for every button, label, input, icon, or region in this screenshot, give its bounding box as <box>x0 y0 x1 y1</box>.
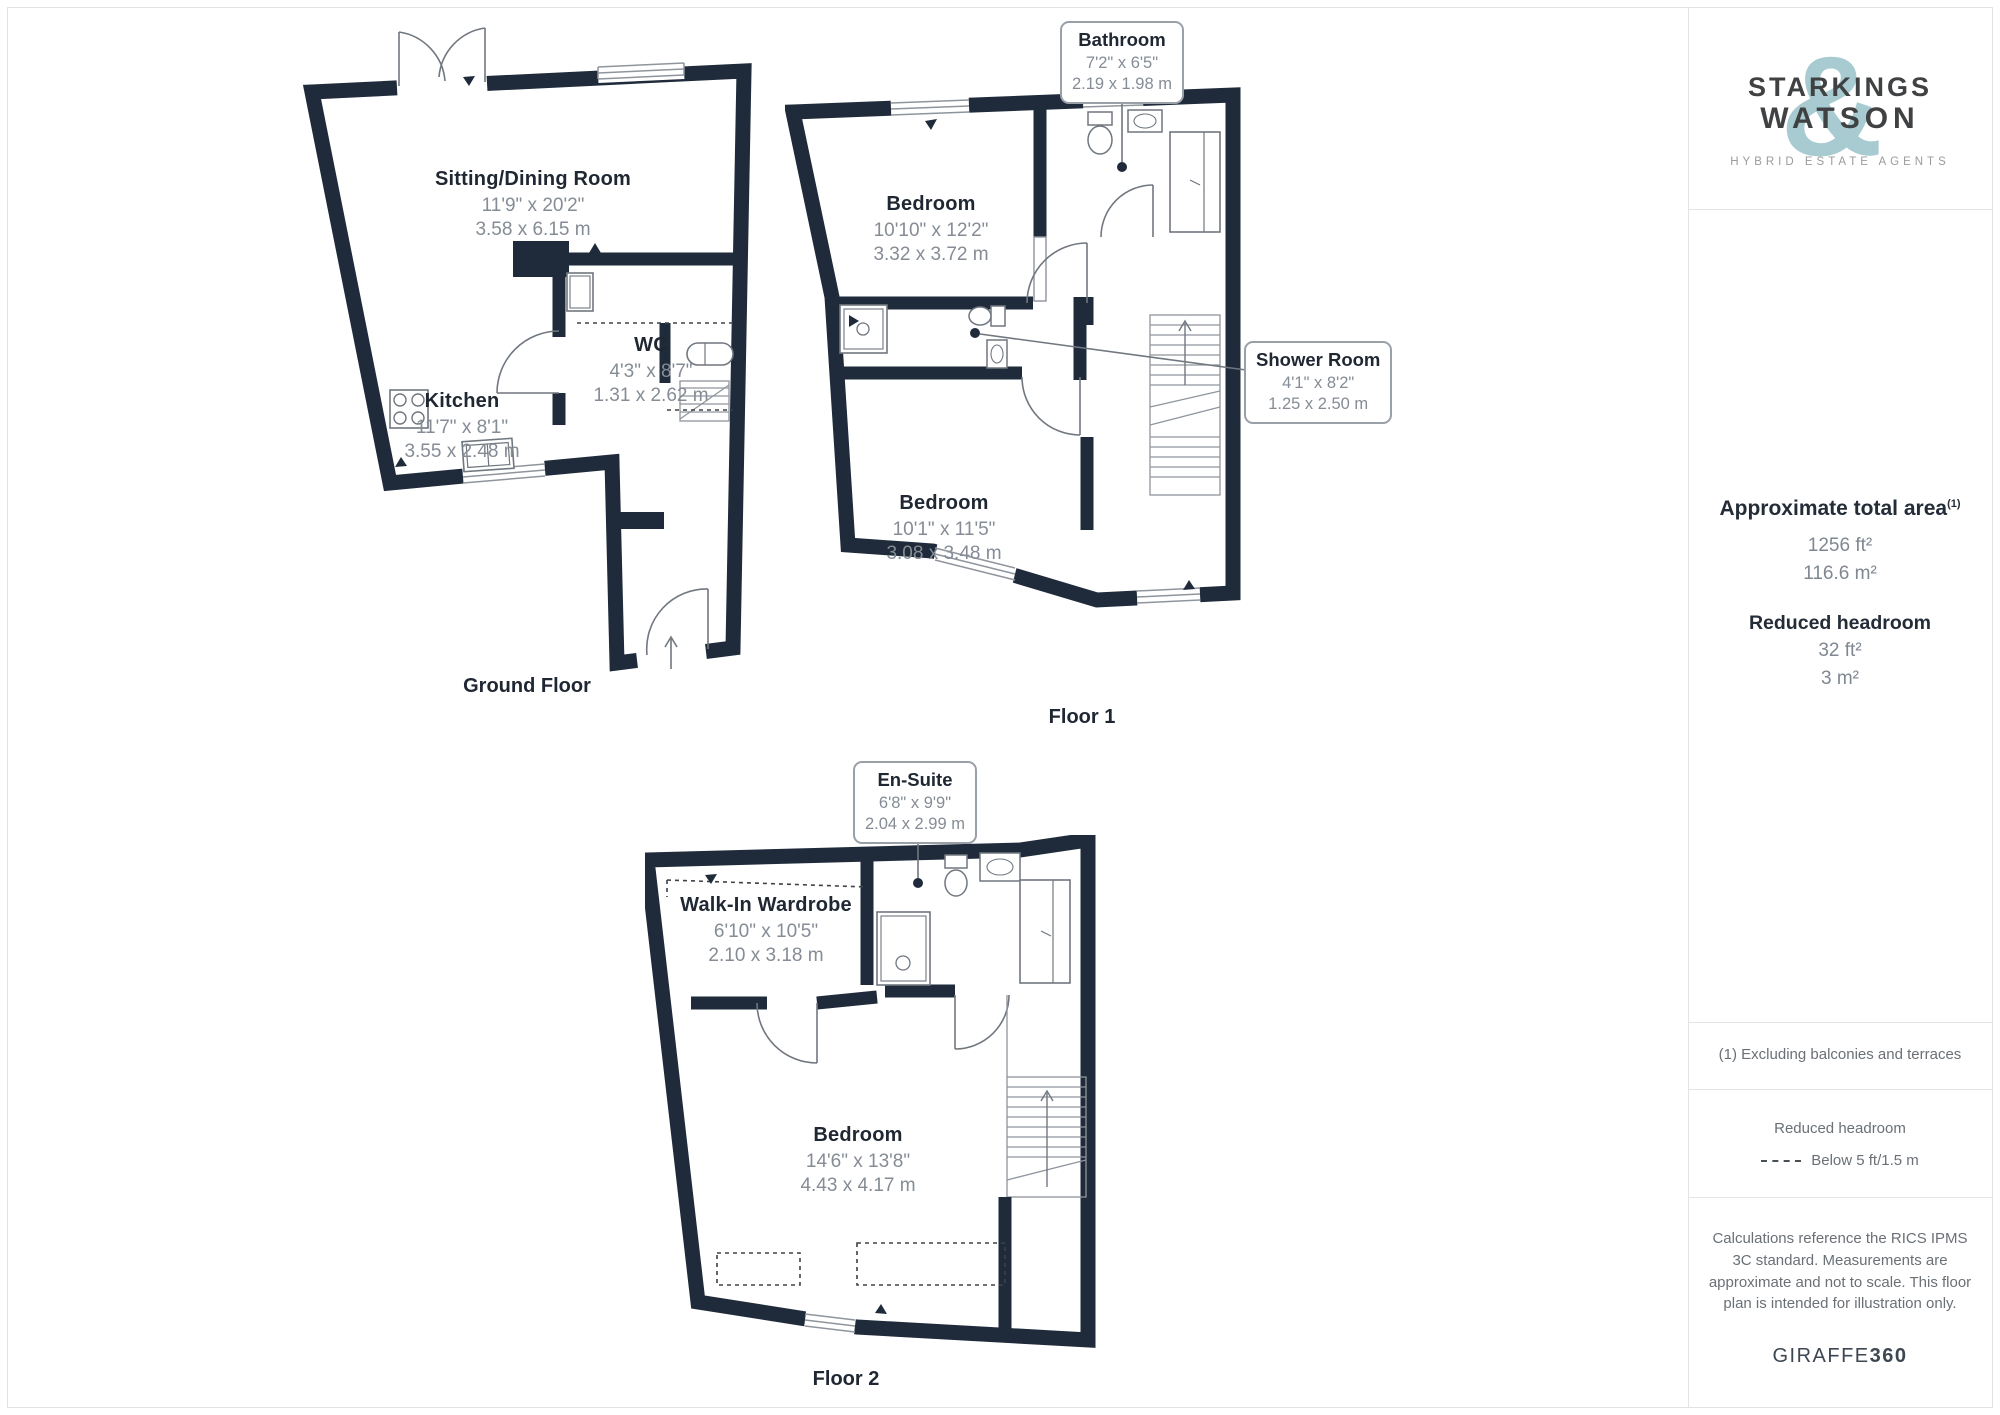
callout-name: Bathroom <box>1072 29 1172 51</box>
disclaimer-text: Calculations reference the RICS IPMS 3C … <box>1702 1228 1978 1315</box>
room-label-bedroom-3: Bedroom 14'6" x 13'8" 4.43 x 4.17 m <box>800 1124 915 1199</box>
total-area-title-text: Approximate total area <box>1719 497 1947 520</box>
callout-en-suite: En-Suite 6'8" x 9'9" 2.04 x 2.99 m <box>853 761 977 844</box>
room-name: Bedroom <box>873 193 988 216</box>
divider <box>1689 209 1992 210</box>
callout-name: Shower Room <box>1256 349 1380 371</box>
callout-name: En-Suite <box>865 769 965 791</box>
divider <box>1689 1089 1992 1090</box>
room-name: Kitchen <box>404 390 519 413</box>
room-label-bedroom-2: Bedroom 10'1" x 11'5" 3.08 x 3.48 m <box>886 492 1001 567</box>
room-name: Bedroom <box>800 1124 915 1147</box>
room-name: WC <box>593 334 708 357</box>
total-area-imperial: 1256 ft² <box>1688 535 1992 557</box>
caption-floor-2: Floor 2 <box>813 1368 880 1391</box>
brand-logo: & STARKINGS WATSON HYBRID ESTATE AGENTS <box>1688 8 1992 209</box>
room-name: Bedroom <box>886 492 1001 515</box>
room-dims-metric: 3.55 x 2.48 m <box>404 440 519 464</box>
brand-name-bottom: WATSON <box>1688 102 1992 136</box>
callout-shower-room: Shower Room 4'1" x 8'2" 1.25 x 2.50 m <box>1244 341 1392 424</box>
caption-ground-floor: Ground Floor <box>463 675 591 698</box>
room-dims-imperial: 11'9" x 20'2" <box>435 194 631 218</box>
room-dims-metric: 4.43 x 4.17 m <box>800 1174 915 1198</box>
room-dims-imperial: 10'10" x 12'2" <box>873 219 988 243</box>
legend-label: Below 5 ft/1.5 m <box>1811 1152 1919 1169</box>
room-dims-imperial: 14'6" x 13'8" <box>800 1150 915 1174</box>
callout-bathroom: Bathroom 7'2" x 6'5" 2.19 x 1.98 m <box>1060 21 1184 104</box>
room-dims-imperial: 6'10" x 10'5" <box>680 920 852 944</box>
room-dims-metric: 3.32 x 3.72 m <box>873 243 988 267</box>
total-area-title: Approximate total area(1) <box>1688 497 1992 521</box>
provider-suffix: 360 <box>1870 1345 1908 1367</box>
room-label-walk-in-wardrobe: Walk-In Wardrobe 6'10" x 10'5" 2.10 x 3.… <box>680 894 852 969</box>
brand-tagline: HYBRID ESTATE AGENTS <box>1688 156 1992 168</box>
room-label-kitchen: Kitchen 11'7" x 8'1" 3.55 x 2.48 m <box>404 390 519 465</box>
callout-dims-metric: 2.19 x 1.98 m <box>1072 74 1172 95</box>
floorplan-page: Sitting/Dining Room 11'9" x 20'2" 3.58 x… <box>0 0 2000 1415</box>
callout-dims-metric: 1.25 x 2.50 m <box>1256 394 1380 415</box>
footnote: (1) Excluding balconies and terraces <box>1688 1046 1992 1063</box>
caption-floor-1: Floor 1 <box>1049 706 1116 729</box>
callout-dims-imperial: 6'8" x 9'9" <box>865 793 965 814</box>
room-dims-imperial: 11'7" x 8'1" <box>404 416 519 440</box>
reduced-headroom-title: Reduced headroom <box>1688 612 1992 635</box>
room-label-bedroom-1: Bedroom 10'10" x 12'2" 3.32 x 3.72 m <box>873 193 988 268</box>
divider <box>1689 1022 1992 1023</box>
room-dims-imperial: 4'3" x 8'7" <box>593 360 708 384</box>
floor-1-plan-drawing <box>785 85 1255 725</box>
room-dims-metric: 3.58 x 6.15 m <box>435 218 631 242</box>
provider-logo: GIRAFFE360 <box>1688 1345 1992 1368</box>
reduced-headroom-metric: 3 m² <box>1688 668 1992 690</box>
legend-row: Below 5 ft/1.5 m <box>1688 1152 1992 1169</box>
brand-name-top: STARKINGS <box>1688 72 1992 103</box>
callout-dims-imperial: 7'2" x 6'5" <box>1072 53 1172 74</box>
provider-name: GIRAFFE <box>1772 1345 1869 1367</box>
dashed-line-swatch <box>1761 1160 1801 1162</box>
callout-dims-metric: 2.04 x 2.99 m <box>865 814 965 835</box>
room-dims-metric: 2.10 x 3.18 m <box>680 944 852 968</box>
divider <box>1689 1197 1992 1198</box>
legend-title: Reduced headroom <box>1688 1120 1992 1137</box>
room-dims-metric: 3.08 x 3.48 m <box>886 542 1001 566</box>
reduced-headroom-imperial: 32 ft² <box>1688 640 1992 662</box>
room-label-wc: WC 4'3" x 8'7" 1.31 x 2.62 m <box>593 334 708 409</box>
room-name: Sitting/Dining Room <box>435 168 631 191</box>
room-dims-imperial: 10'1" x 11'5" <box>886 518 1001 542</box>
room-name: Walk-In Wardrobe <box>680 894 852 917</box>
total-area-metric: 116.6 m² <box>1688 563 1992 585</box>
callout-dims-imperial: 4'1" x 8'2" <box>1256 373 1380 394</box>
total-area-superscript: (1) <box>1947 498 1960 510</box>
room-label-sitting-dining: Sitting/Dining Room 11'9" x 20'2" 3.58 x… <box>435 168 631 243</box>
room-dims-metric: 1.31 x 2.62 m <box>593 384 708 408</box>
